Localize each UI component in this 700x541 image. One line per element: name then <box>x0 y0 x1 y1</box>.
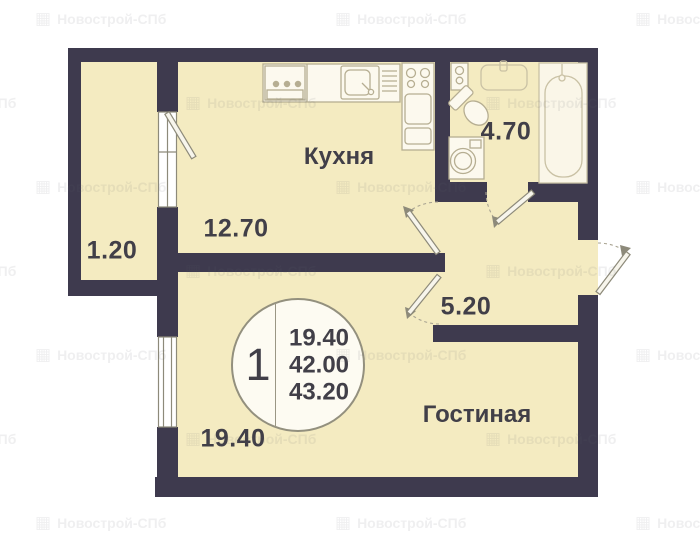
watermark: ▦Новострой-СПб <box>635 346 700 363</box>
watermark: ▦Новострой-СПб <box>635 178 700 195</box>
watermark: ▦Новострой-СПб <box>485 94 616 111</box>
watermark: ▦Новострой-СПб <box>335 178 466 195</box>
wall-left-upper <box>157 48 178 112</box>
watermark: ▦Новострой-СПб <box>185 94 316 111</box>
badge-total-area: 43.20 <box>281 379 357 406</box>
watermark-text: Новострой-СПб <box>207 263 316 279</box>
builder-logo-icon: ▦ <box>35 346 51 363</box>
floor-plan: Кухня 12.70 1.20 4.70 5.20 Гостиная 19.4… <box>0 0 700 541</box>
builder-logo-icon: ▦ <box>485 94 501 111</box>
wall-right-upper <box>578 48 598 240</box>
watermark-text: Новострой-СПб <box>57 11 166 27</box>
watermark-text: Новострой-СПб <box>507 431 616 447</box>
entrance-door-swing-arc <box>598 243 628 253</box>
watermark-text: Новострой-СПб <box>0 263 16 279</box>
builder-logo-icon: ▦ <box>485 262 501 279</box>
builder-logo-icon: ▦ <box>35 514 51 531</box>
wall-bathroom-bottom-right <box>528 182 598 202</box>
watermark: ▦Новострой-СПб <box>0 262 16 279</box>
wall-left-middle <box>157 207 178 337</box>
kitchen-area: 12.70 <box>203 215 268 244</box>
watermark: ▦Новострой-СПб <box>185 430 316 447</box>
wall-balcony-left <box>68 48 81 296</box>
builder-logo-icon: ▦ <box>35 178 51 195</box>
watermark-text: Новострой-СПб <box>357 515 466 531</box>
living-room-label: Гостиная <box>423 401 531 429</box>
watermark-text: Новострой-СПб <box>357 11 466 27</box>
watermark-text: Новострой-СПб <box>357 347 466 363</box>
builder-logo-icon: ▦ <box>335 10 351 27</box>
watermark: ▦Новострой-СПб <box>35 178 166 195</box>
hallway-area: 5.20 <box>441 293 492 322</box>
builder-logo-icon: ▦ <box>635 514 651 531</box>
wall-top <box>68 48 598 62</box>
builder-logo-icon: ▦ <box>335 514 351 531</box>
rooms-count: 1 <box>241 339 275 391</box>
watermark-text: Новострой-СПб <box>57 347 166 363</box>
watermark: ▦Новострой-СПб <box>335 346 466 363</box>
wall-hallway-bottom <box>433 325 598 342</box>
watermark: ▦Новострой-СПб <box>635 10 700 27</box>
watermark: ▦Новострой-СПб <box>335 10 466 27</box>
watermark-text: Новострой-СПб <box>0 431 16 447</box>
watermark-text: Новострой-СПб <box>207 95 316 111</box>
watermark: ▦Новострой-СПб <box>485 430 616 447</box>
unit-info-badge: 1 19.40 42.00 43.20 <box>231 298 365 432</box>
builder-logo-icon: ▦ <box>635 178 651 195</box>
bathroom-area: 4.70 <box>481 118 532 147</box>
watermark: ▦Новострой-СПб <box>35 10 166 27</box>
builder-logo-icon: ▦ <box>635 10 651 27</box>
watermark-text: Новострой-СПб <box>57 179 166 195</box>
watermark-text: Новострой-СПб <box>657 347 700 363</box>
watermark-text: Новострой-СПб <box>507 95 616 111</box>
builder-logo-icon: ▦ <box>335 346 351 363</box>
watermark: ▦Новострой-СПб <box>35 346 166 363</box>
builder-logo-icon: ▦ <box>185 430 201 447</box>
watermark-text: Новострой-СПб <box>357 179 466 195</box>
builder-logo-icon: ▦ <box>185 94 201 111</box>
watermark: ▦Новострой-СПб <box>635 514 700 531</box>
watermark-text: Новострой-СПб <box>0 95 16 111</box>
badge-areas: 19.40 42.00 43.20 <box>281 325 357 406</box>
watermark-text: Новострой-СПб <box>207 431 316 447</box>
watermark: ▦Новострой-СПб <box>335 514 466 531</box>
kitchen-label: Кухня <box>304 143 374 171</box>
builder-logo-icon: ▦ <box>35 10 51 27</box>
builder-logo-icon: ▦ <box>485 430 501 447</box>
watermark: ▦Новострой-СПб <box>0 430 16 447</box>
watermark-text: Новострой-СПб <box>657 11 700 27</box>
wall-bottom <box>155 477 598 497</box>
balcony-area: 1.20 <box>87 237 138 266</box>
watermark-text: Новострой-СПб <box>507 263 616 279</box>
watermark: ▦Новострой-СПб <box>485 262 616 279</box>
watermark-text: Новострой-СПб <box>657 515 700 531</box>
badge-divider <box>275 303 276 427</box>
builder-logo-icon: ▦ <box>635 346 651 363</box>
watermark: ▦Новострой-СПб <box>0 94 16 111</box>
watermark: ▦Новострой-СПб <box>35 514 166 531</box>
watermark: ▦Новострой-СПб <box>185 262 316 279</box>
builder-logo-icon: ▦ <box>185 262 201 279</box>
builder-logo-icon: ▦ <box>335 178 351 195</box>
watermark-text: Новострой-СПб <box>57 515 166 531</box>
watermark-text: Новострой-СПб <box>657 179 700 195</box>
